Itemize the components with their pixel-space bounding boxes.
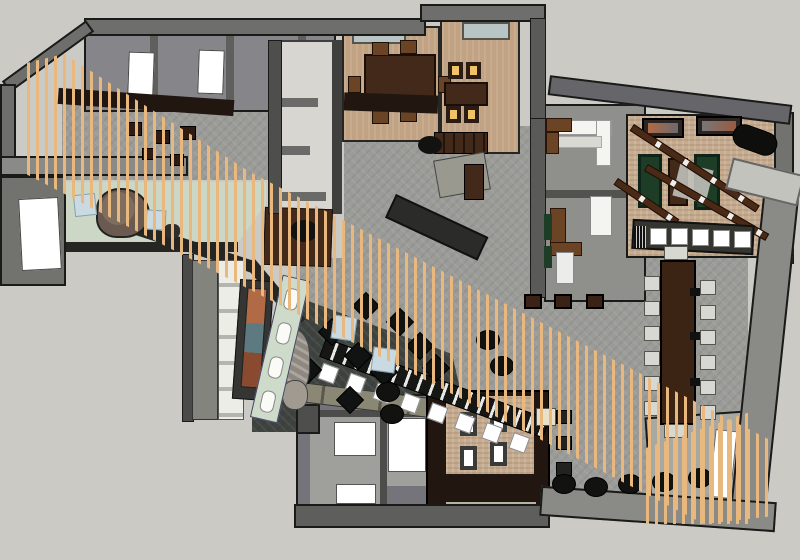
dining-table-2 xyxy=(444,82,488,106)
games-bar-striped-block xyxy=(634,226,646,248)
office-table-white xyxy=(590,196,612,236)
bar-stool xyxy=(734,231,751,248)
lit-chair xyxy=(446,106,461,123)
corridor-fin xyxy=(280,98,318,107)
white-door xyxy=(336,484,376,504)
dining-chair xyxy=(400,40,417,54)
bar-stool xyxy=(481,422,503,444)
stool-brown xyxy=(586,294,604,309)
bar-stool xyxy=(508,432,530,454)
round-table-black xyxy=(418,136,442,154)
stool-brown xyxy=(554,294,572,309)
bar-stool xyxy=(318,363,340,385)
office-desk xyxy=(550,208,566,246)
white-door xyxy=(388,418,426,472)
mid-wall-lower xyxy=(530,118,546,298)
bar-stool xyxy=(713,230,730,247)
bar-stool xyxy=(671,228,688,245)
white-door xyxy=(197,50,225,95)
ottoman xyxy=(380,404,404,424)
white-door xyxy=(18,197,62,271)
skylight xyxy=(462,22,510,40)
corridor-floor xyxy=(280,40,338,212)
table-fixture xyxy=(690,288,700,296)
booth-chair xyxy=(460,446,477,470)
communal-chair xyxy=(700,355,716,370)
communal-chair xyxy=(700,380,716,395)
bar-stool xyxy=(692,229,709,246)
south-wall-center xyxy=(294,504,550,528)
corridor-east-wall xyxy=(332,40,342,214)
green-mat xyxy=(544,214,552,240)
communal-chair xyxy=(700,280,716,295)
dining-chair xyxy=(372,110,389,124)
floor-ottoman xyxy=(584,477,608,497)
communal-chair xyxy=(700,330,716,345)
stool-brown xyxy=(524,294,542,309)
office-sofa-white xyxy=(556,252,574,284)
table-fixture xyxy=(690,378,700,386)
bar-stool xyxy=(650,228,667,245)
office-sofa-brown xyxy=(546,118,572,132)
white-door xyxy=(127,52,155,97)
dining-chair xyxy=(372,42,389,56)
floor-ottoman xyxy=(552,474,576,494)
communal-chair xyxy=(644,326,660,341)
boh-partition xyxy=(226,34,234,110)
wood-station xyxy=(464,164,484,200)
corridor-fin xyxy=(280,146,310,155)
floor-plan-scene xyxy=(0,0,800,560)
lit-chair xyxy=(448,62,463,79)
communal-chair xyxy=(644,301,660,316)
art-canvas xyxy=(702,121,736,131)
lit-chair xyxy=(466,62,481,79)
communal-chair xyxy=(644,351,660,366)
mid-wall-upper xyxy=(530,18,546,120)
bar-stool xyxy=(427,402,449,424)
table-fixture xyxy=(690,332,700,340)
north-wall xyxy=(84,18,426,36)
west-corridor-band xyxy=(192,260,218,420)
kitchen-canopy xyxy=(344,92,439,113)
dining-chair xyxy=(348,76,361,93)
restroom-divider xyxy=(380,410,387,516)
white-door xyxy=(334,422,376,456)
art-canvas xyxy=(648,123,678,133)
glass-door-handle xyxy=(274,321,293,346)
bar-stool xyxy=(454,412,476,434)
lit-chair xyxy=(464,106,479,123)
north-wall-jut xyxy=(420,4,546,22)
head-chair xyxy=(664,246,688,260)
green-mat xyxy=(544,246,552,268)
kitchen-booth xyxy=(434,132,488,154)
office-sofa-brown xyxy=(546,132,559,154)
communal-chair xyxy=(700,305,716,320)
glass-door-handle xyxy=(266,355,285,380)
communal-chair xyxy=(644,276,660,291)
ottoman xyxy=(376,382,400,402)
glass-door-handle xyxy=(259,389,278,414)
office-counter-gray xyxy=(558,136,602,148)
